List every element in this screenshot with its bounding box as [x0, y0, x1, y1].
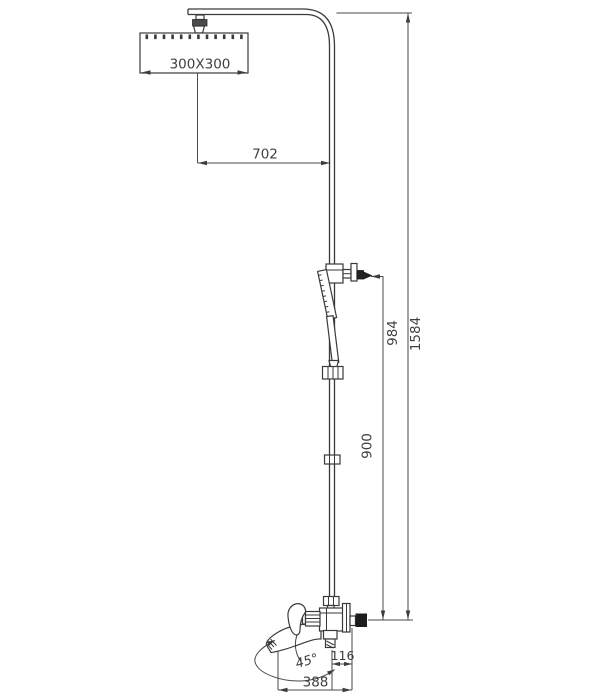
head-size-label: 300X300: [170, 57, 231, 73]
dim-45-label: 45°: [294, 651, 320, 672]
dim-388-label: 388: [303, 675, 329, 691]
dim-702: 702: [198, 73, 331, 165]
ball-joint: [193, 15, 208, 33]
dim-1584: 1584: [406, 13, 424, 620]
drawing-canvas: 300X300 702: [0, 0, 616, 700]
dim-702-label: 702: [252, 147, 278, 163]
ball-joint-nut: [193, 20, 208, 27]
outlet-nut: [324, 631, 338, 640]
supply-nut: [324, 597, 340, 606]
wall-union-block: [356, 614, 368, 628]
hand-shower-handle: [327, 316, 339, 363]
pipe-outer-wall: [188, 9, 335, 598]
outlet-flange: [351, 264, 357, 282]
dimension-drawing: 300X300 702: [0, 0, 616, 700]
ball-joint-cone: [194, 26, 205, 33]
dim-1584-label: 1584: [408, 317, 424, 351]
slide-bracket: [326, 264, 372, 284]
pipe-inner-wall: [188, 15, 330, 599]
dim-984-label: 984: [385, 320, 401, 346]
riser-union-nut: [325, 455, 341, 464]
shower-arm-and-riser-pipe: [188, 9, 335, 598]
rain-shower-head: 300X300: [140, 33, 248, 75]
mixer-body: [320, 608, 344, 631]
hose-nipple: [357, 271, 364, 280]
hand-shower: [318, 270, 339, 368]
hose-nipple-tip: [364, 272, 372, 279]
dim-984-900: 984 900: [360, 274, 402, 620]
dim-vertical-extensions: [337, 13, 414, 620]
hose-nut: [323, 367, 344, 380]
dim-900-label: 900: [360, 433, 376, 459]
ball-joint-stem: [196, 15, 204, 20]
union-neck: [350, 616, 356, 626]
dim-116-label: 116: [331, 648, 355, 663]
